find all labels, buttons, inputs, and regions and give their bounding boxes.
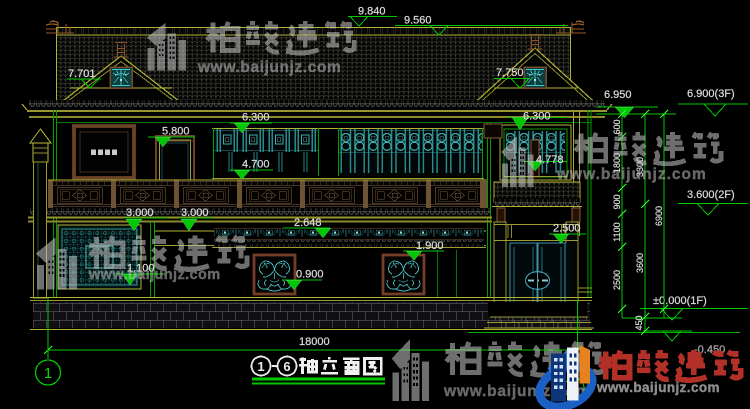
svg-text:2.500: 2.500 bbox=[553, 223, 581, 235]
svg-text:6.900(3F): 6.900(3F) bbox=[687, 88, 735, 100]
svg-text:7.750: 7.750 bbox=[496, 67, 524, 79]
svg-text:6: 6 bbox=[283, 359, 290, 374]
svg-text:3600: 3600 bbox=[635, 253, 645, 273]
svg-text:4.700: 4.700 bbox=[242, 159, 270, 171]
svg-text:2.648: 2.648 bbox=[294, 217, 322, 229]
svg-text:7.701: 7.701 bbox=[68, 68, 96, 80]
svg-text:9.560: 9.560 bbox=[404, 15, 432, 27]
svg-text:9.840: 9.840 bbox=[358, 6, 386, 18]
svg-text:6.300: 6.300 bbox=[523, 111, 551, 123]
svg-text:www.baijunjz.com: www.baijunjz.com bbox=[596, 380, 720, 395]
svg-text:3.000: 3.000 bbox=[181, 207, 209, 219]
svg-text:www.baijunjz.com: www.baijunjz.com bbox=[197, 59, 341, 76]
svg-text:www.baijunjz.com: www.baijunjz.com bbox=[556, 166, 707, 183]
svg-text:1.900: 1.900 bbox=[416, 240, 444, 252]
svg-text:4.778: 4.778 bbox=[536, 154, 564, 166]
svg-text:2500: 2500 bbox=[612, 270, 622, 290]
svg-text:1: 1 bbox=[44, 365, 52, 382]
svg-text:900: 900 bbox=[612, 194, 622, 209]
svg-text:0.900: 0.900 bbox=[296, 269, 324, 281]
svg-text:6900: 6900 bbox=[654, 206, 664, 226]
svg-text:5.800: 5.800 bbox=[162, 126, 190, 138]
svg-text:3.600(2F): 3.600(2F) bbox=[687, 189, 735, 201]
svg-text:www.baijunjz.com: www.baijunjz.com bbox=[88, 267, 221, 283]
svg-text:3.000: 3.000 bbox=[126, 207, 154, 219]
svg-text:6.950: 6.950 bbox=[604, 89, 632, 101]
svg-text:±0.000(1F): ±0.000(1F) bbox=[653, 295, 707, 307]
svg-text:18000: 18000 bbox=[299, 336, 330, 348]
svg-text:1: 1 bbox=[257, 359, 264, 374]
svg-text:450: 450 bbox=[634, 315, 644, 330]
svg-text:6.300: 6.300 bbox=[242, 112, 270, 124]
svg-text:1100: 1100 bbox=[612, 222, 622, 241]
